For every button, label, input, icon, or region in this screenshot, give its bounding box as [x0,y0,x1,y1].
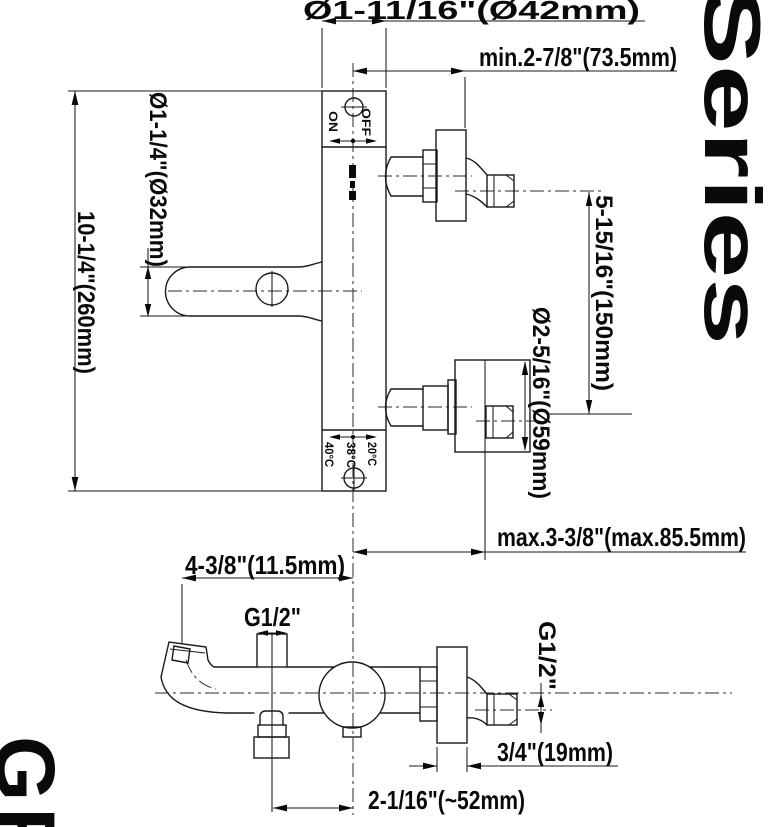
wall-connection [420,647,517,743]
threaded-outlet [486,406,513,438]
dim-max-depth-label: max.3-3/8"(max.85.5mm) [497,522,746,552]
step-piece [423,386,448,430]
taper [467,677,487,725]
off-label: OFF [359,108,373,136]
outlet-thread-label: G1/2" [533,621,560,690]
temp-hot-label: 40°C [322,442,336,467]
dim-height-label: 10-1/4"(260mm) [72,211,99,374]
dim-port-spacing [546,192,632,414]
wall-plate-edge [437,647,467,743]
dim-min-depth [353,68,677,128]
aerator-notch [172,646,190,663]
dim-spout-reach-label: 4-3/8"(11.5mm) [185,550,345,580]
bottom-valve-assembly [386,360,531,452]
temperature-indicator [329,434,377,440]
faucet-technical-drawing: Ø1-11/16"(Ø42mm) min.2-7/8"(73.5mm) max.… [0,0,768,827]
dim-outlet-thread [538,683,544,733]
dim-outlet-offset-label: 2-1/16"(~52mm) [368,785,525,815]
screw-cross [341,465,367,491]
dim-plate-width-label: Ø1-11/16"(Ø42mm) [303,0,640,25]
dim-port-spacing-label: 5-15/16"(150mm) [590,195,617,391]
taper [466,158,487,207]
inlet-thread-label: G1/2" [244,602,301,632]
temp-cold-label: 20°C [365,442,379,466]
series-title: Series [688,0,768,345]
temp-mid-label: 38°C [344,442,358,468]
on-label: ON [326,111,340,132]
dim-flange-dia-label: Ø2-5/16"(Ø59mm) [527,307,554,499]
cartridge-housing [319,662,385,728]
hex-nut [420,667,437,721]
small-marking [349,165,356,200]
tub-spout [161,642,227,713]
brand-logo: GF [0,736,72,827]
dim-handle-dia-label: Ø1-1/4"(Ø32mm) [144,92,171,267]
faucet-body [214,662,420,737]
dim-min-depth-label: min.2-7/8"(73.5mm) [479,42,677,72]
dim-plate-thickness-label: 3/4"(19mm) [497,737,613,767]
centerlines [155,63,732,815]
on-off-indicator [329,138,377,144]
dim-outlet-offset [273,805,353,812]
